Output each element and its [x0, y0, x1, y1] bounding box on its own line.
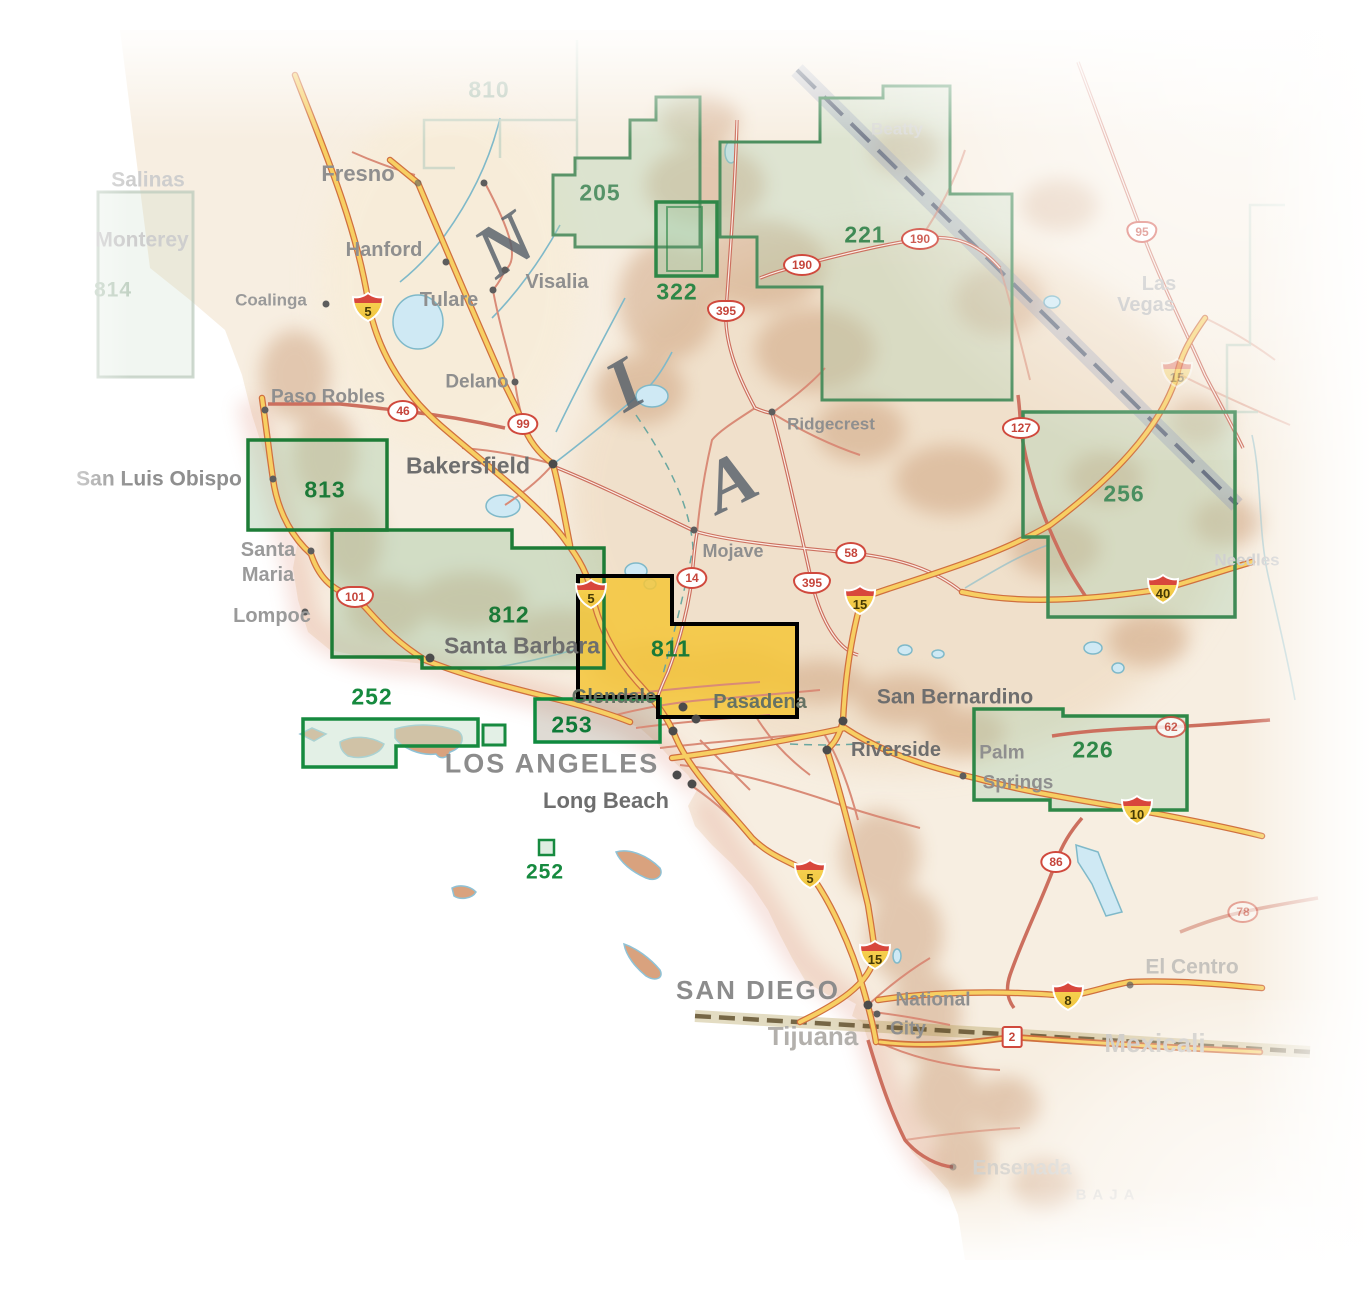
city-label-las-vegas-2: Vegas	[1117, 295, 1175, 315]
city-label-national-city-1: National	[896, 991, 971, 1010]
city-dot-el-centro	[1127, 982, 1134, 989]
svg-text:5: 5	[806, 871, 813, 886]
us-190-number: 190	[792, 258, 812, 272]
city-label-glendale: Glendale	[572, 687, 656, 707]
city-label-salinas: Salinas	[111, 170, 185, 191]
city-label-fresno: Fresno	[321, 163, 394, 185]
area-label-811: 811	[651, 638, 691, 661]
us-101-number: 101	[345, 590, 365, 604]
area-label-221: 221	[844, 224, 885, 247]
area-label-253: 253	[551, 714, 592, 737]
city-label-santa-barbara: Santa Barbara	[444, 635, 600, 658]
city-label-long-beach: Long Beach	[543, 790, 669, 812]
city-dot-coalinga	[323, 301, 330, 308]
area-label-813: 813	[304, 479, 345, 502]
area-label-256: 256	[1103, 483, 1144, 506]
interstate-5-shield: 5	[575, 579, 607, 609]
area-label-252-south: 252	[526, 862, 564, 883]
city-dot-mojave	[691, 527, 698, 534]
svg-text:15: 15	[853, 597, 867, 612]
interstate-15-shield: 15	[843, 585, 877, 615]
ca-14-number: 14	[685, 571, 698, 585]
city-label-hanford: Hanford	[346, 240, 423, 260]
road-junction-dot	[415, 180, 422, 187]
city-dot-santa-barbara	[426, 654, 435, 663]
svg-text:8: 8	[1064, 993, 1071, 1008]
city-dot-national-city	[874, 1011, 881, 1018]
ca-78-number: 78	[1236, 905, 1249, 919]
city-dot-ridgecrest	[769, 409, 776, 416]
city-dot-fresno	[481, 180, 488, 187]
mexico-2-shield: 2	[1002, 1026, 1023, 1048]
us-395-number: 395	[802, 576, 822, 590]
svg-text:10: 10	[1130, 807, 1144, 822]
city-dot-ensenada	[950, 1164, 957, 1171]
city-dot-san-bernardino	[839, 717, 848, 726]
city-label-mojave: Mojave	[702, 542, 763, 560]
us-395-number: 395	[716, 304, 736, 318]
city-label-coalinga: Coalinga	[235, 292, 307, 309]
interstate-40-shield: 40	[1146, 574, 1180, 604]
city-label-palm-springs-1: Palm	[979, 744, 1024, 763]
ca-99-number: 99	[516, 417, 529, 431]
city-label-los-angeles: LOS ANGELES	[445, 751, 660, 778]
city-dot-bakersfield	[549, 460, 558, 469]
interstate-10-shield: 10	[1120, 795, 1154, 825]
city-label-santa-maria-1: Santa	[241, 540, 295, 560]
city-label-lompoc: Lompoc	[233, 606, 311, 626]
city-label-riverside: Riverside	[851, 740, 941, 760]
city-dot-hanford	[443, 259, 450, 266]
svg-text:15: 15	[1170, 370, 1184, 385]
city-label-san-bernardino: San Bernardino	[877, 687, 1033, 708]
city-label-mexicali: Mexicali	[1104, 1030, 1205, 1056]
city-dot-san-diego	[864, 1001, 873, 1010]
city-label-delano: Delano	[445, 373, 508, 392]
mexico-2-number: 2	[1009, 1030, 1016, 1044]
city-dot-paso-robles	[262, 407, 269, 414]
us-190-number: 190	[910, 232, 930, 246]
region-label-baja: BAJA	[1076, 1188, 1141, 1203]
city-dot-riverside	[823, 746, 832, 755]
city-dot-long-beach	[688, 780, 697, 789]
city-label-el-centro: El Centro	[1145, 957, 1238, 978]
us-190-shield: 190	[901, 228, 939, 250]
svg-text:40: 40	[1156, 586, 1170, 601]
city-label-santa-maria-2: Maria	[242, 565, 294, 585]
city-label-paso-robles: Paso Robles	[271, 388, 385, 407]
city-dot-palm-springs	[960, 773, 967, 780]
city-dot-los-angeles	[669, 727, 678, 736]
city-label-pasadena: Pasadena	[713, 692, 806, 712]
city-label-visalia: Visalia	[525, 272, 588, 292]
city-dot-pasadena	[692, 715, 701, 724]
city-dot-la-harbor	[673, 771, 682, 780]
city-label-needles: Needles	[1214, 552, 1279, 569]
ca-86-number: 86	[1049, 855, 1062, 869]
city-label-beatty: Beatty	[871, 121, 923, 138]
city-label-bakersfield: Bakersfield	[406, 455, 530, 478]
area-label-226: 226	[1072, 739, 1113, 762]
city-label-tijuana: Tijuana	[768, 1023, 859, 1049]
city-dot-visalia	[502, 267, 509, 274]
trails-illustrated-index-map: N I A 811 812 813 205 322 221 256 226 25…	[0, 0, 1372, 1296]
ca-127-shield: 127	[1002, 417, 1040, 439]
city-label-palm-springs-2: Springs	[983, 774, 1054, 793]
city-dot-santa-maria	[308, 548, 315, 555]
city-label-national-city-2: City	[890, 1020, 926, 1039]
city-dot-glendale	[679, 703, 688, 712]
interstate-15-shield: 15	[858, 940, 892, 970]
city-label-san-luis-obispo: San Luis Obispo	[76, 469, 242, 490]
interstate-15-shield-faded: 15	[1160, 358, 1194, 388]
city-label-ridgecrest: Ridgecrest	[787, 416, 875, 433]
us-95-number: 95	[1135, 225, 1148, 239]
interstate-5-shield: 5	[352, 292, 384, 322]
ca-62-number: 62	[1164, 720, 1177, 734]
city-label-ensenada: Ensenada	[972, 1158, 1071, 1179]
ca-46-number: 46	[396, 404, 409, 418]
city-label-las-vegas-1: Las	[1142, 274, 1176, 294]
city-label-san-diego: SAN DIEGO	[676, 977, 840, 1003]
area-label-205: 205	[579, 182, 620, 205]
area-label-814-faded: 814	[94, 280, 132, 301]
ca-58-number: 58	[844, 546, 857, 560]
svg-text:5: 5	[587, 591, 594, 606]
area-label-810-faded: 810	[468, 79, 509, 102]
city-dot-delano	[512, 379, 519, 386]
area-label-812: 812	[488, 604, 529, 627]
city-dot-tulare	[490, 287, 497, 294]
ca-127-number: 127	[1011, 421, 1031, 435]
interstate-5-shield: 5	[794, 859, 826, 889]
svg-text:15: 15	[868, 952, 882, 967]
city-label-monterey: Monterey	[95, 230, 188, 251]
area-label-322: 322	[656, 281, 697, 304]
us-190-shield: 190	[783, 254, 821, 276]
svg-text:5: 5	[364, 304, 371, 319]
interstate-8-shield: 8	[1052, 981, 1084, 1011]
city-label-tulare: Tulare	[420, 290, 479, 310]
city-dot-san-luis-obispo	[270, 476, 277, 483]
area-label-252: 252	[351, 686, 392, 709]
